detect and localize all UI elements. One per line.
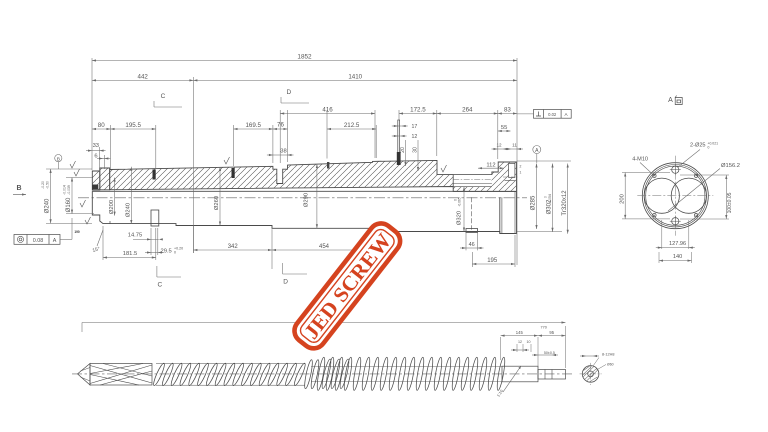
svg-text:-0.039: -0.039	[67, 185, 71, 195]
svg-text:6: 6	[94, 154, 97, 160]
svg-text:C: C	[158, 282, 163, 289]
svg-text:8-12H8: 8-12H8	[602, 353, 614, 357]
svg-text:416: 416	[322, 107, 333, 114]
svg-text:200: 200	[619, 194, 625, 204]
svg-text:-0.054: -0.054	[548, 194, 552, 204]
svg-text:212.5: 212.5	[344, 122, 360, 129]
svg-text:169.5: 169.5	[245, 122, 261, 129]
svg-text:33: 33	[93, 143, 99, 149]
svg-text:264: 264	[462, 107, 473, 114]
svg-text:20: 20	[400, 147, 406, 153]
svg-text:46: 46	[469, 242, 475, 248]
svg-text:1852: 1852	[297, 54, 312, 61]
svg-text:-0.50: -0.50	[45, 181, 49, 189]
svg-text:Ø285: Ø285	[531, 195, 537, 210]
svg-text:Tr320x12: Tr320x12	[562, 190, 568, 216]
svg-text:0: 0	[708, 145, 710, 149]
svg-text:0.08: 0.08	[33, 238, 44, 244]
svg-text:D: D	[286, 89, 291, 96]
svg-text:Ø260: Ø260	[214, 196, 220, 210]
svg-text:12: 12	[496, 143, 502, 148]
svg-text:2: 2	[520, 165, 522, 169]
svg-text:Ø160: Ø160	[66, 197, 72, 212]
svg-text:95: 95	[549, 330, 554, 335]
svg-text:29.5: 29.5	[161, 248, 172, 254]
svg-text:50±0.5: 50±0.5	[544, 351, 555, 355]
svg-text:12: 12	[518, 340, 522, 344]
svg-text:442: 442	[138, 74, 149, 81]
svg-text:770: 770	[541, 326, 547, 330]
svg-text:14.75: 14.75	[128, 233, 143, 239]
svg-text:76: 76	[277, 122, 284, 129]
svg-text:112: 112	[486, 162, 495, 168]
svg-text:A: A	[668, 97, 673, 104]
svg-text:195: 195	[487, 258, 498, 264]
svg-text:454: 454	[319, 244, 330, 250]
svg-text:B: B	[16, 185, 21, 192]
svg-text:-0.065: -0.065	[458, 197, 462, 206]
svg-text:A: A	[53, 238, 57, 244]
svg-text:190: 190	[74, 230, 80, 234]
svg-text:0.02: 0.02	[548, 112, 557, 117]
svg-text:83: 83	[504, 107, 511, 114]
svg-text:127.96: 127.96	[669, 241, 686, 247]
svg-text:145: 145	[516, 330, 524, 335]
svg-text:17: 17	[412, 124, 418, 130]
svg-text:Ø320: Ø320	[457, 211, 463, 225]
svg-text:100±0.05: 100±0.05	[727, 192, 733, 213]
svg-text:12: 12	[412, 134, 418, 140]
svg-text:Ø290: Ø290	[304, 193, 310, 207]
svg-text:B: B	[57, 156, 60, 162]
svg-text:1410: 1410	[348, 74, 362, 81]
svg-text:30: 30	[413, 147, 419, 153]
svg-text:Ø60: Ø60	[607, 363, 614, 367]
svg-text:181.5: 181.5	[123, 251, 138, 257]
svg-text:10: 10	[527, 340, 531, 344]
svg-text:140: 140	[673, 254, 682, 260]
svg-text:195.5: 195.5	[125, 122, 141, 129]
svg-text:55: 55	[501, 125, 507, 131]
svg-text:Ø156.2: Ø156.2	[721, 163, 740, 169]
svg-text:Ø200: Ø200	[109, 200, 115, 214]
svg-text:2-Ø25: 2-Ø25	[690, 143, 706, 149]
svg-text:80: 80	[98, 122, 105, 129]
svg-text:0: 0	[174, 251, 176, 255]
svg-text:342: 342	[228, 244, 239, 250]
svg-text:38: 38	[280, 148, 286, 154]
svg-text:Ø240: Ø240	[126, 203, 132, 217]
svg-text:Ø240: Ø240	[45, 198, 51, 213]
svg-text:1: 1	[520, 171, 522, 175]
svg-text:11: 11	[512, 143, 517, 148]
svg-text:4-M10: 4-M10	[632, 157, 648, 163]
svg-text:C: C	[161, 93, 166, 100]
svg-text:172.5: 172.5	[410, 107, 426, 114]
svg-text:D: D	[283, 279, 288, 286]
